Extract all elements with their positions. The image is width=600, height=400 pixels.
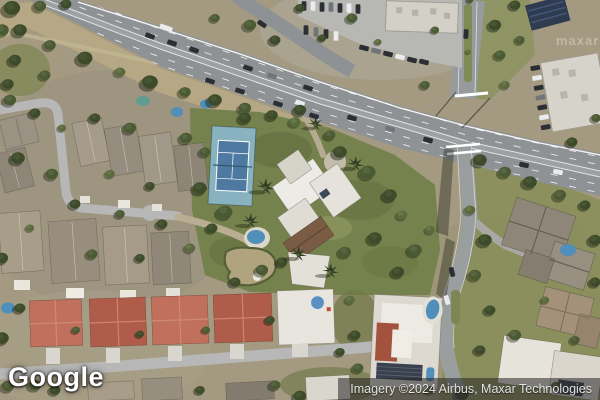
commercial-building bbox=[385, 1, 458, 33]
swimming-pool bbox=[247, 230, 265, 244]
tennis-court bbox=[208, 126, 256, 206]
road-median bbox=[464, 4, 472, 82]
satellite-map-canvas[interactable]: maxar Google Imagery ©2024 Airbus, Maxar… bbox=[0, 0, 600, 400]
blue-dome-roof bbox=[310, 295, 324, 309]
backyard-pool bbox=[171, 107, 183, 117]
median-island bbox=[451, 290, 460, 324]
white-roof-house bbox=[277, 289, 335, 345]
backyard-pool bbox=[560, 244, 576, 256]
imagery-attribution: Imagery ©2024 Airbus, Maxar Technologies bbox=[338, 378, 600, 400]
google-logo[interactable]: Google bbox=[8, 362, 104, 393]
backyard-pool bbox=[136, 96, 150, 106]
maxar-watermark: maxar bbox=[556, 33, 599, 48]
solar-panel-house bbox=[370, 293, 444, 389]
